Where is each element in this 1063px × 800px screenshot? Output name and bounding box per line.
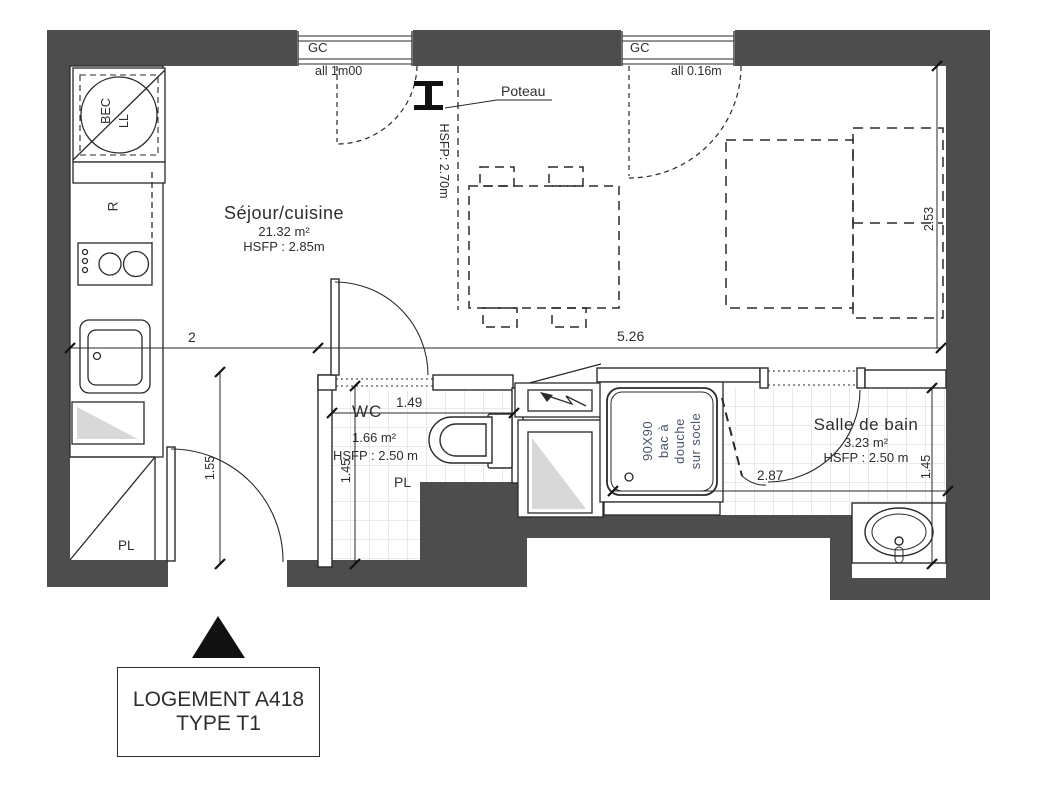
title-block: LOGEMENT A418 TYPE T1 (117, 667, 320, 757)
kitchen-cabinet (72, 402, 144, 444)
ll-label: LL (117, 91, 131, 151)
sejour-area: 21.32 m² (184, 224, 384, 239)
sejour-room-label: Séjour/cuisine 21.32 m² HSFP : 2.85m (184, 203, 384, 254)
shower-line-3: douche (672, 401, 688, 481)
dim-entry-depth: 1.55 (203, 438, 217, 498)
sejour-name: Séjour/cuisine (184, 203, 384, 224)
shower-line-1: 90X90 (640, 401, 656, 481)
window2-sill: all 0.16m (671, 64, 722, 78)
window1-sill: all 1m00 (315, 64, 362, 78)
dim-bed-depth: 2.53 (922, 189, 936, 249)
dim-kitchen-width: 2 (188, 329, 196, 345)
wc-name: WC (352, 402, 382, 422)
poteau-leader-line (445, 100, 552, 108)
window1-label: GC (308, 40, 328, 55)
sdb-name: Salle de bain (771, 415, 961, 435)
stove (78, 243, 152, 285)
hall-cabinet (518, 420, 603, 517)
bed-dashed (726, 128, 943, 318)
north-arrow-icon (192, 616, 245, 658)
title-line1: LOGEMENT A418 (133, 688, 304, 712)
shower-label: 90X90 bac à douche sur socle (640, 401, 704, 481)
floor-plan: GC all 1m00 GC all 0.16m Poteau HSFP: 2.… (0, 0, 1063, 800)
shower-door-dashed (722, 398, 742, 476)
wc-door (331, 279, 428, 375)
wc-closet-label: PL (394, 474, 411, 490)
dim-wc-depth: 1.45 (339, 441, 353, 501)
sejour-hsfp: HSFP : 2.85m (184, 239, 384, 254)
window2-label: GC (630, 40, 650, 55)
entry-door (167, 447, 283, 562)
kitchen-sink (80, 320, 150, 393)
shower-line-2: bac à (656, 401, 672, 481)
toilet (429, 414, 512, 468)
dining-table-dashed (469, 167, 619, 327)
bec-label: BEC (99, 81, 113, 141)
electrical-panel (515, 364, 603, 417)
wc-area: 1.66 m² (352, 430, 396, 445)
dim-sdb-width: 2.87 (757, 468, 783, 483)
fridge-label: R (106, 177, 121, 237)
title-line2: TYPE T1 (176, 712, 261, 736)
shower-line-4: sur socle (688, 401, 704, 481)
poteau-label: Poteau (501, 83, 545, 99)
entry-closet (70, 457, 155, 560)
dim-sdb-depth: 1.45 (919, 437, 933, 497)
dimension-ticks (65, 61, 953, 569)
dim-living-width: 5.26 (617, 328, 644, 344)
steel-column (414, 81, 443, 110)
poteau-hsfp-label: HSFP: 2.70m (437, 116, 451, 206)
entry-closet-label: PL (118, 538, 135, 553)
dim-wc-width: 1.49 (396, 395, 422, 410)
